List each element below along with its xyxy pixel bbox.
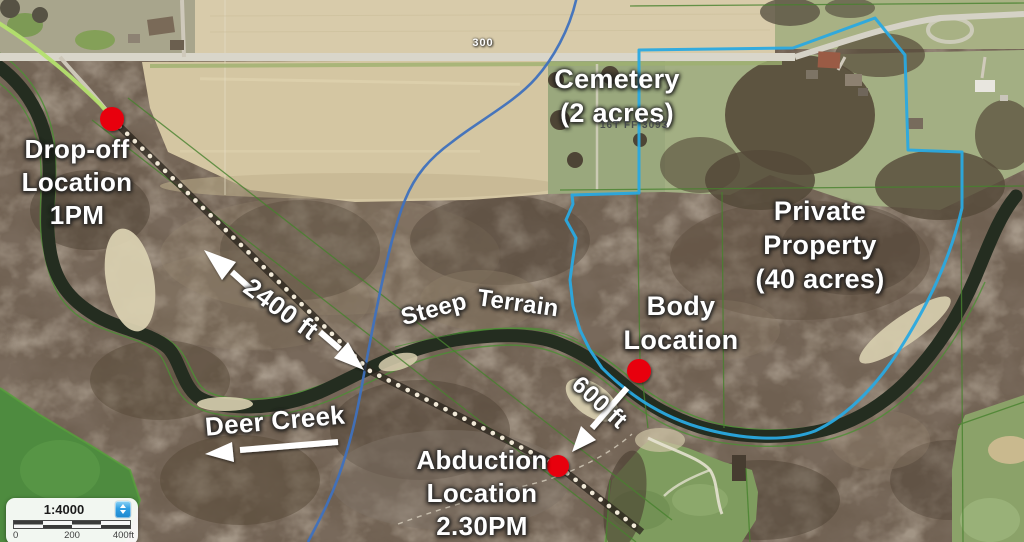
scale-label-0: 0	[13, 530, 18, 541]
scale-stepper[interactable]	[115, 501, 131, 518]
scale-label-200: 200	[64, 530, 80, 541]
label-grid-reference: 16T FF 3093	[600, 120, 668, 131]
label-drop-off-location: Drop-off Location 1PM	[22, 133, 133, 231]
stepper-down-icon[interactable]	[120, 510, 126, 514]
label-road-300: 300	[472, 37, 493, 49]
label-abduction-location: Abduction Location 2.30PM	[416, 444, 547, 542]
scale-bar-labels: 0 200 400ft	[13, 530, 131, 542]
scale-widget: 1:4000 0 200 400ft	[6, 498, 138, 542]
abduction-marker[interactable]	[547, 455, 569, 477]
label-body-location: Body Location	[624, 289, 739, 357]
scale-label-400: 400ft	[113, 530, 134, 541]
stepper-up-icon[interactable]	[120, 504, 126, 508]
map-viewport[interactable]: Drop-off Location 1PM Cemetery (2 acres)…	[0, 0, 1024, 542]
drop-off-marker[interactable]	[100, 107, 124, 131]
scale-ratio-value[interactable]: 1:4000	[13, 502, 115, 517]
scale-bar	[13, 520, 131, 529]
body-location-marker[interactable]	[627, 359, 651, 383]
label-private-property: Private Property (40 acres)	[755, 194, 884, 296]
